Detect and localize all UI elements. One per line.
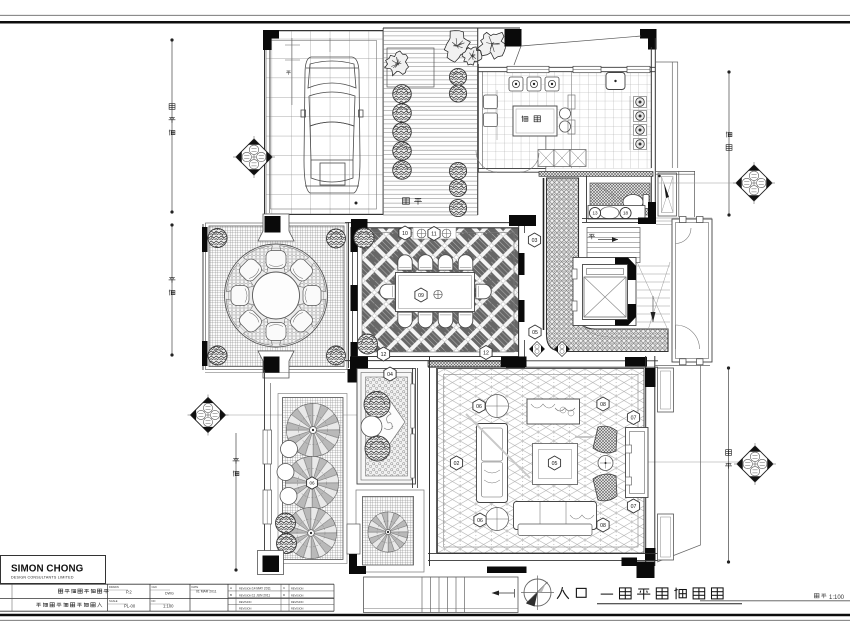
svg-text:03: 03: [532, 238, 538, 244]
svg-text:07: 07: [631, 415, 637, 421]
svg-text:REVISION: REVISION: [291, 593, 304, 597]
svg-text:11: 11: [431, 231, 436, 237]
svg-text:1:100: 1:100: [829, 595, 845, 601]
svg-text:08: 08: [600, 402, 606, 408]
svg-text:05: 05: [532, 330, 538, 336]
svg-text:SIMON CHONG: SIMON CHONG: [11, 564, 84, 575]
svg-text:PL-00: PL-00: [124, 604, 136, 609]
svg-text:08: 08: [600, 523, 606, 529]
svg-text:06: 06: [476, 404, 482, 410]
svg-text:REVISION: REVISION: [291, 600, 304, 604]
svg-text:12: 12: [483, 350, 489, 356]
svg-text:DWG: DWG: [165, 592, 174, 596]
svg-text:REVISION: REVISION: [239, 606, 252, 610]
svg-text:12: 12: [381, 352, 387, 358]
svg-text:13: 13: [592, 211, 598, 216]
svg-text:10: 10: [402, 231, 408, 237]
svg-text:REVISION: REVISION: [291, 587, 304, 591]
svg-text:DESIGN CONSULTANTS LIMITED: DESIGN CONSULTANTS LIMITED: [11, 576, 74, 580]
svg-text:A: A: [230, 586, 232, 590]
svg-text:01 MAR 2011: 01 MAR 2011: [196, 590, 217, 594]
svg-text:REVISION: REVISION: [239, 587, 252, 591]
svg-text:CHK: CHK: [152, 585, 158, 589]
svg-text:SCALE: SCALE: [109, 599, 118, 603]
svg-text:P.2: P.2: [126, 590, 132, 595]
svg-text:14 MAY 2011: 14 MAY 2011: [252, 587, 271, 591]
svg-text:09: 09: [418, 293, 424, 299]
svg-text:B: B: [230, 593, 232, 597]
svg-text:06: 06: [477, 518, 483, 524]
svg-text:06: 06: [309, 481, 315, 486]
svg-text:1:100: 1:100: [163, 604, 174, 609]
svg-text:04: 04: [387, 372, 393, 378]
svg-text:11 JUN 2011: 11 JUN 2011: [252, 593, 270, 597]
svg-text:REVISION: REVISION: [291, 606, 304, 610]
svg-text:DRAWN: DRAWN: [109, 585, 119, 589]
svg-text:07: 07: [631, 504, 637, 510]
svg-text:REVISION: REVISION: [239, 600, 252, 604]
svg-text:02: 02: [454, 461, 460, 467]
svg-text:NO: NO: [152, 599, 156, 603]
svg-text:18: 18: [623, 211, 629, 216]
svg-text:05: 05: [552, 461, 558, 467]
svg-text:DATE: DATE: [192, 585, 199, 589]
svg-text:REVISION: REVISION: [239, 593, 252, 597]
